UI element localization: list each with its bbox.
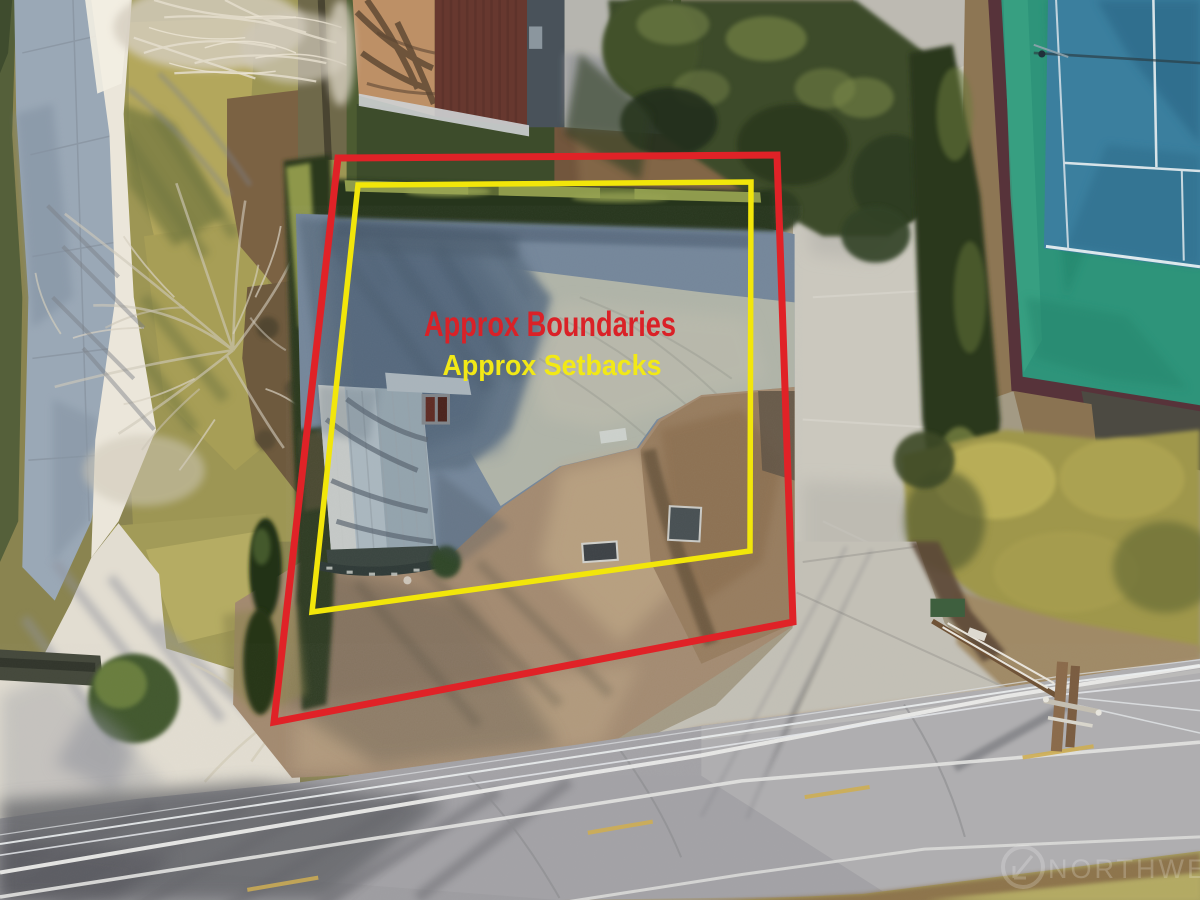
- svg-text:NORTHWEST: NORTHWEST: [1048, 854, 1200, 884]
- svg-text:Approx Boundaries: Approx Boundaries: [424, 305, 676, 344]
- svg-text:Approx Setbacks: Approx Setbacks: [443, 350, 662, 382]
